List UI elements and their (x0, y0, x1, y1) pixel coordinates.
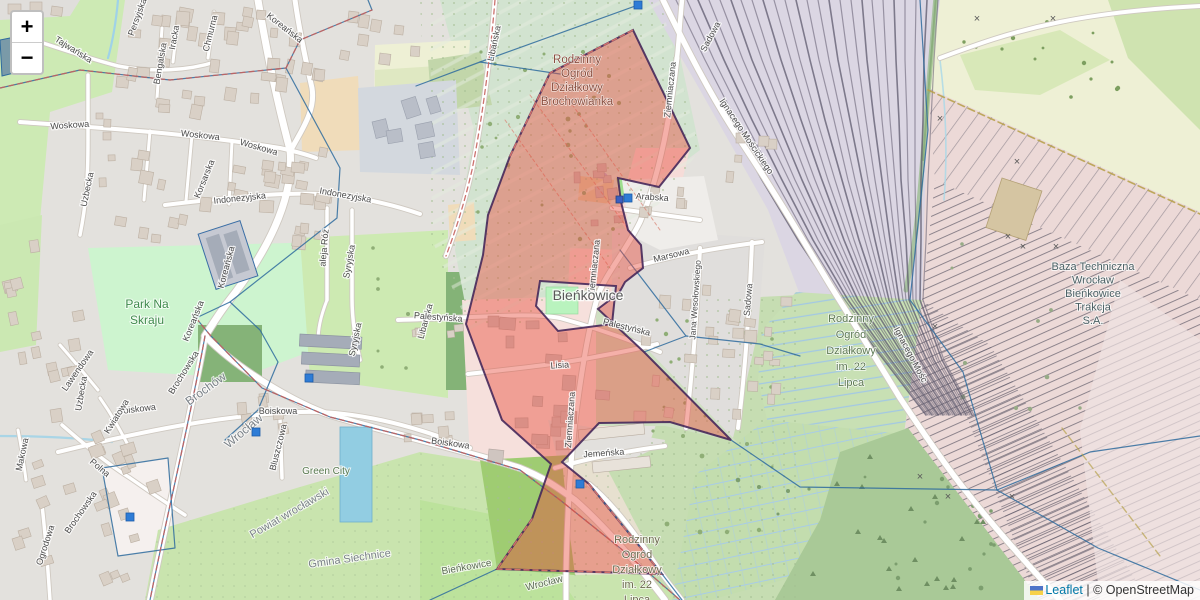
svg-text:Rodzinny: Rodzinny (553, 54, 601, 66)
svg-text:Skraju: Skraju (130, 313, 164, 327)
svg-text:S.A.: S.A. (1083, 315, 1104, 327)
svg-text:×: × (945, 491, 951, 503)
svg-text:Lisia: Lisia (550, 359, 569, 370)
svg-text:Baza Techniczna: Baza Techniczna (1052, 261, 1136, 273)
svg-text:Działkowy: Działkowy (551, 82, 603, 94)
svg-text:Ogród: Ogród (622, 549, 653, 561)
svg-text:im. 22: im. 22 (836, 361, 866, 373)
svg-text:×: × (1014, 156, 1020, 168)
svg-text:Brochowianka: Brochowianka (541, 96, 614, 108)
svg-text:Ogród: Ogród (836, 329, 867, 341)
svg-text:×: × (1020, 241, 1026, 253)
svg-text:×: × (974, 13, 980, 25)
svg-text:Działkowy: Działkowy (826, 345, 876, 357)
svg-text:×: × (1050, 13, 1056, 25)
svg-text:Działkowy: Działkowy (612, 564, 662, 576)
svg-text:×: × (937, 113, 943, 125)
svg-text:Trakcja: Trakcja (1075, 302, 1112, 314)
svg-text:Rodzinny: Rodzinny (828, 313, 874, 325)
svg-text:Boiskowa: Boiskowa (259, 406, 298, 416)
svg-text:×: × (932, 321, 938, 333)
svg-text:Rodzinny: Rodzinny (614, 534, 660, 546)
svg-text:Bieńkowice: Bieńkowice (553, 287, 624, 303)
svg-text:Park Na: Park Na (125, 297, 169, 311)
svg-text:×: × (1009, 491, 1015, 503)
svg-text:Lipca: Lipca (838, 377, 865, 389)
svg-text:im. 22: im. 22 (622, 579, 652, 591)
svg-text:Bieńkowice: Bieńkowice (1065, 288, 1121, 300)
svg-text:×: × (1005, 231, 1011, 243)
svg-text:Wrocław: Wrocław (1072, 275, 1114, 287)
svg-text:Green City: Green City (302, 466, 350, 477)
svg-text:Lipca: Lipca (624, 594, 651, 600)
svg-text:Ogród: Ogród (561, 68, 593, 80)
svg-text:×: × (1053, 241, 1059, 253)
svg-text:×: × (917, 471, 923, 483)
